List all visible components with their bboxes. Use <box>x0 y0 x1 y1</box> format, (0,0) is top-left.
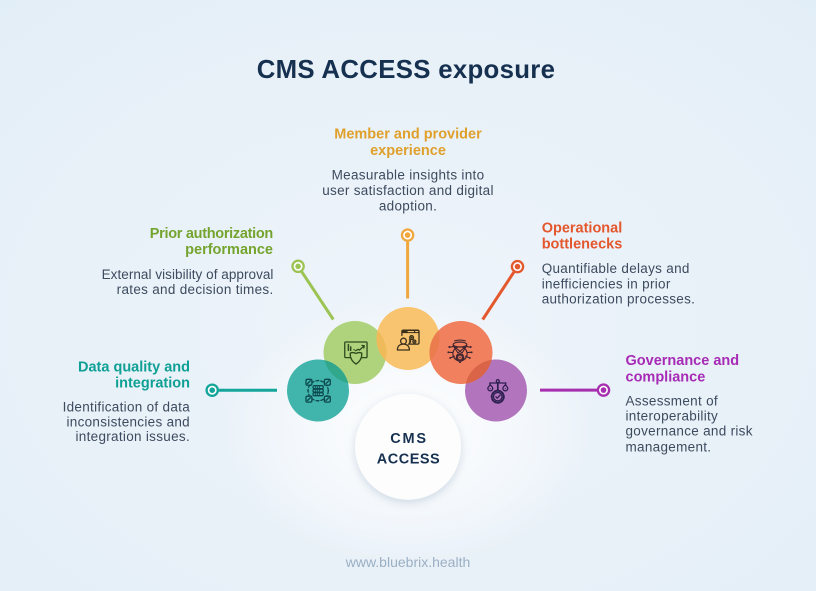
svg-text:rates and decision times.: rates and decision times. <box>117 282 274 297</box>
svg-text:bottlenecks: bottlenecks <box>542 237 623 253</box>
svg-text:Operational: Operational <box>542 221 623 237</box>
svg-text:inefficiencies in prior: inefficiencies in prior <box>542 276 671 291</box>
svg-text:CMS ACCESS exposure: CMS ACCESS exposure <box>257 56 556 84</box>
svg-text:Data quality and: Data quality and <box>78 360 190 376</box>
svg-text:Governance and: Governance and <box>626 353 740 369</box>
svg-text:Identification of data: Identification of data <box>63 399 191 414</box>
svg-text:integration issues.: integration issues. <box>75 429 190 444</box>
svg-text:integration: integration <box>115 376 190 392</box>
svg-text:experience: experience <box>370 143 446 159</box>
svg-text:Quantifiable delays and: Quantifiable delays and <box>542 261 690 276</box>
svg-text:External visibility of approva: External visibility of approval <box>102 267 274 282</box>
svg-text:governance and risk: governance and risk <box>626 424 753 439</box>
svg-text:authorization processes.: authorization processes. <box>542 291 696 306</box>
svg-text:Member and provider: Member and provider <box>334 127 482 143</box>
svg-text:management.: management. <box>626 440 712 455</box>
svg-text:www.bluebrix.health: www.bluebrix.health <box>345 554 471 570</box>
svg-text:Assessment of: Assessment of <box>626 394 718 409</box>
svg-text:performance: performance <box>185 242 273 258</box>
svg-text:adoption.: adoption. <box>379 199 437 214</box>
svg-text:user satisfaction and digital: user satisfaction and digital <box>322 183 494 198</box>
svg-text:Prior authorization: Prior authorization <box>150 226 273 242</box>
svg-text:inconsistencies and: inconsistencies and <box>66 414 190 429</box>
svg-text:CMS: CMS <box>390 431 428 447</box>
svg-text:ACCESS: ACCESS <box>377 452 440 468</box>
svg-text:interoperability: interoperability <box>626 408 719 423</box>
svg-text:Measurable insights into: Measurable insights into <box>332 168 485 183</box>
svg-text:compliance: compliance <box>626 369 706 385</box>
